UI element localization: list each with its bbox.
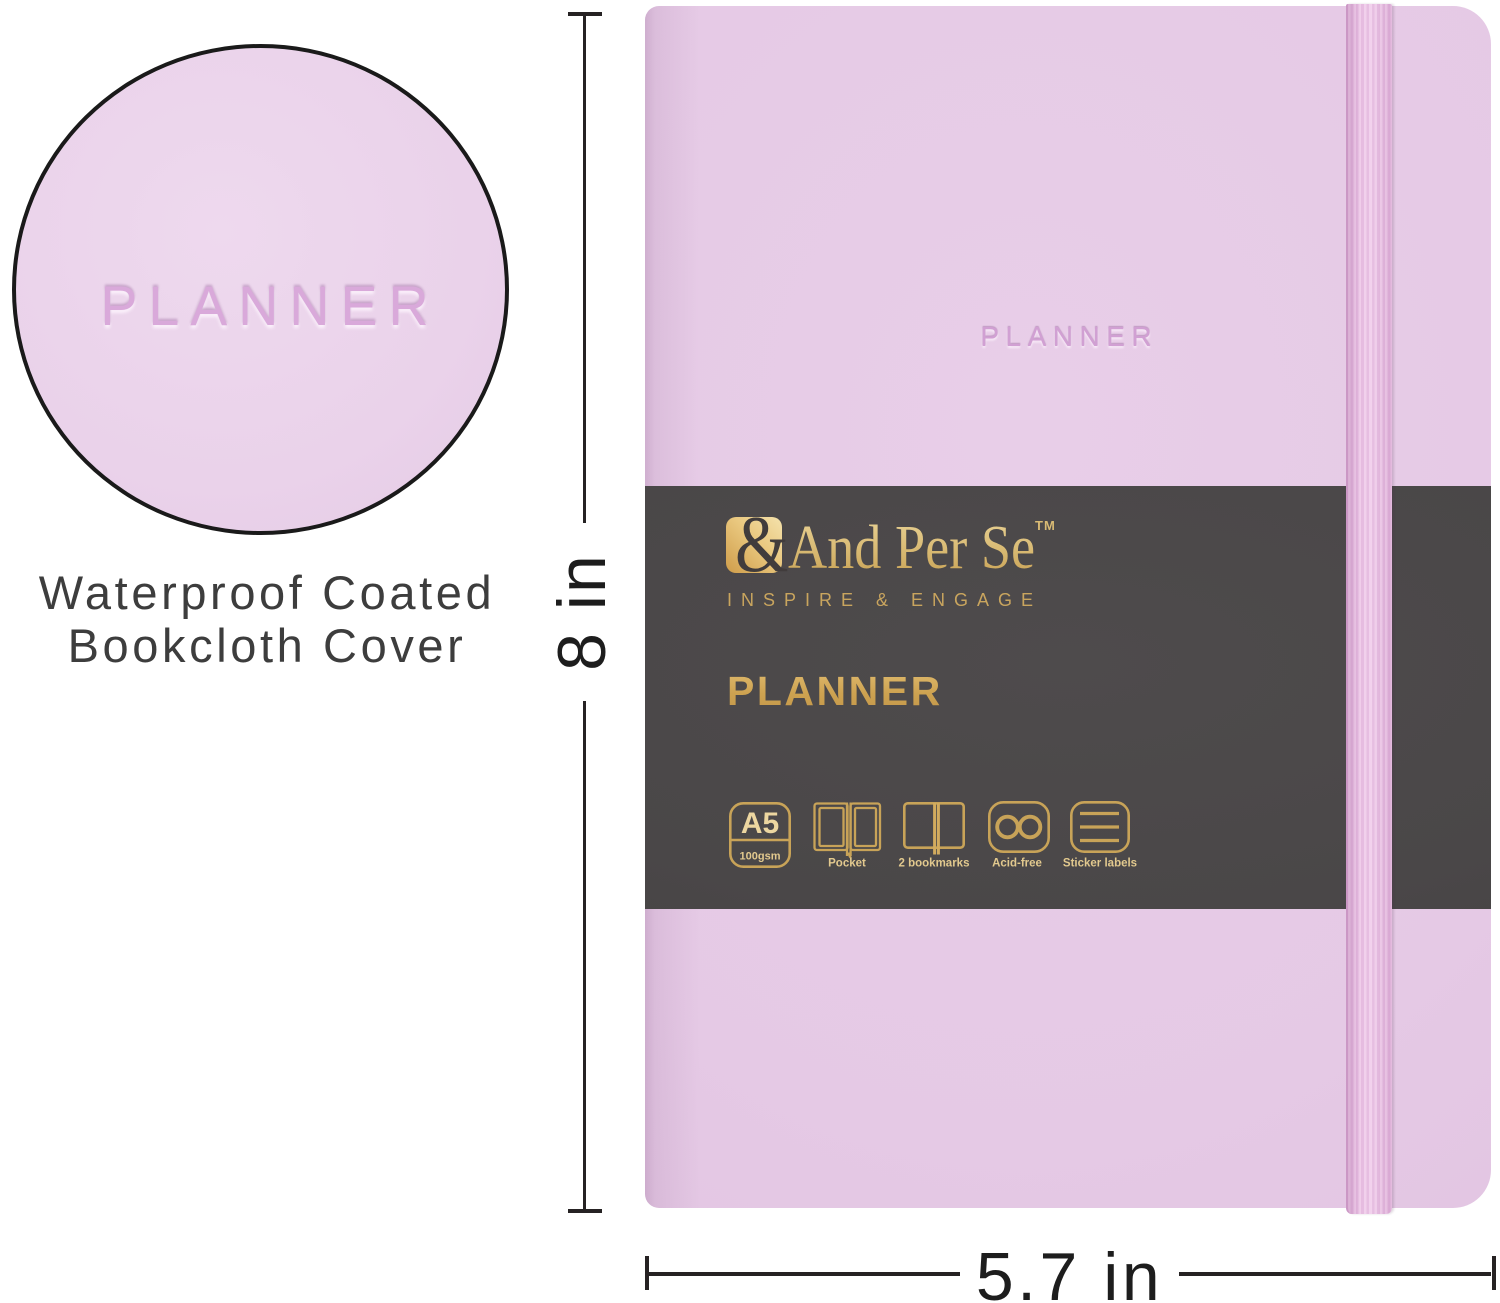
svg-text:2 bookmarks: 2 bookmarks xyxy=(899,858,970,870)
svg-text:Sticker labels: Sticker labels xyxy=(1063,858,1137,870)
svg-text:A5: A5 xyxy=(741,807,779,840)
svg-text:Acid-free: Acid-free xyxy=(992,858,1042,870)
svg-text:&: & xyxy=(735,501,789,589)
svg-text:Pocket: Pocket xyxy=(828,858,866,870)
svg-text:100gsm: 100gsm xyxy=(740,851,781,863)
